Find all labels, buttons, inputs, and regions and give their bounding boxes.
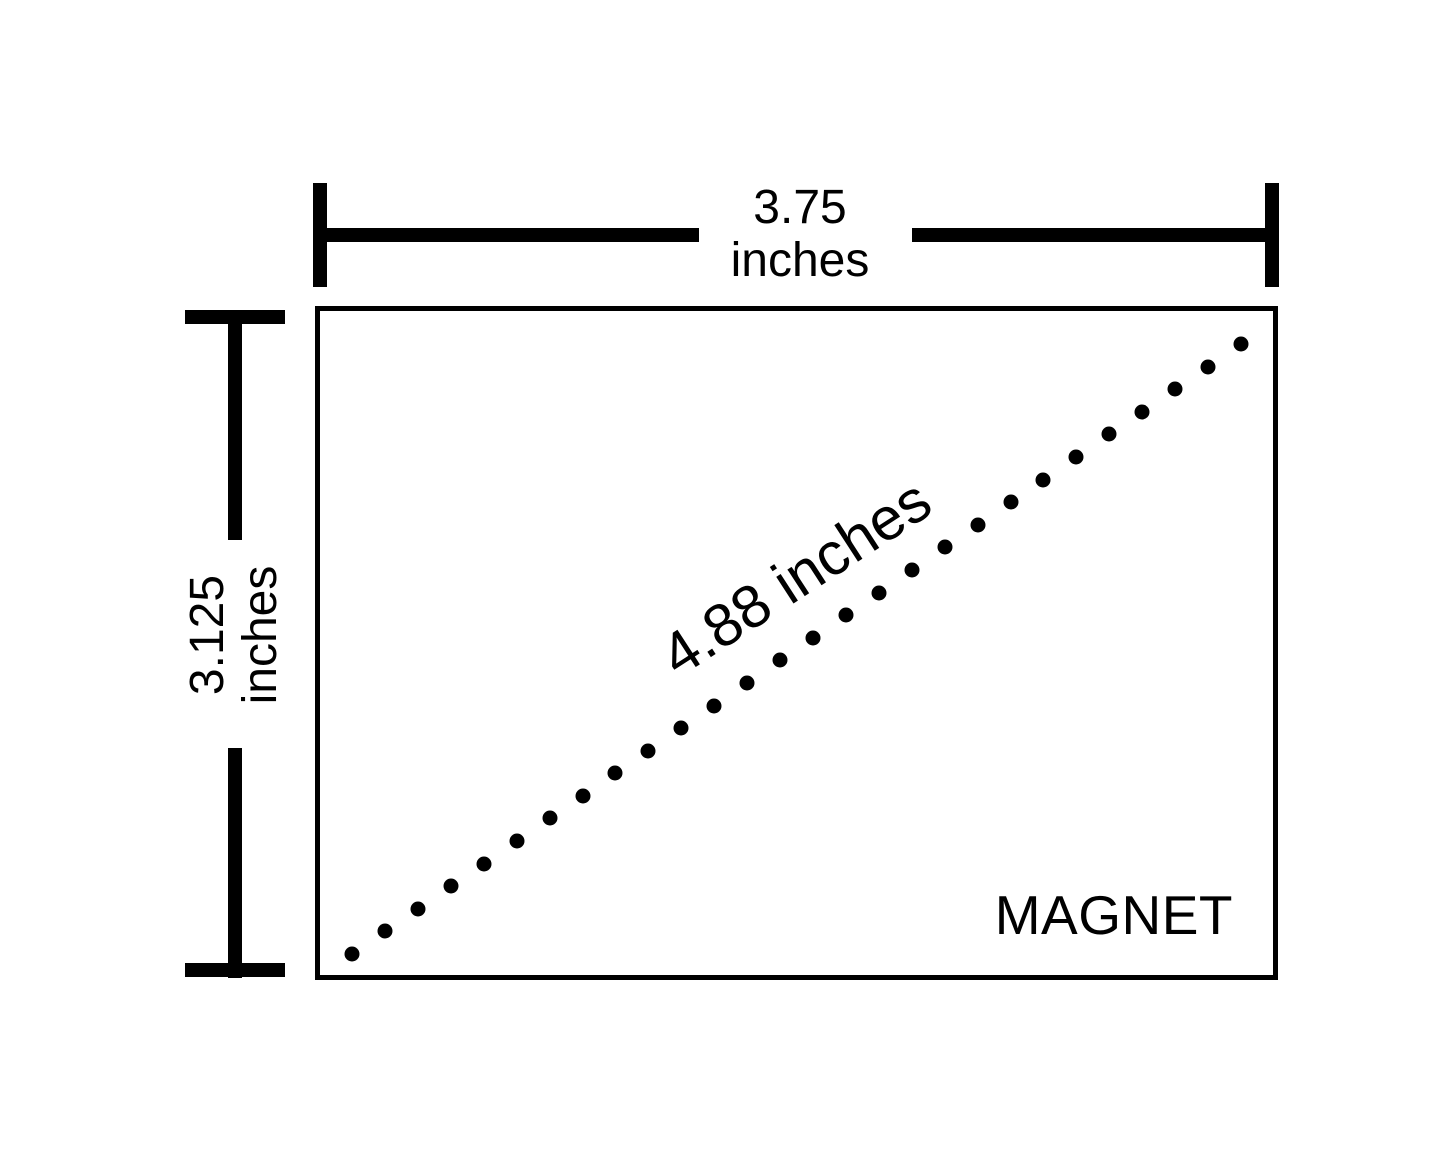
dot bbox=[443, 879, 458, 894]
magnet-label: MAGNET bbox=[995, 888, 1233, 943]
dot bbox=[542, 811, 557, 826]
dot bbox=[1003, 495, 1018, 510]
height-dimension-label: 3.125 inches bbox=[181, 566, 287, 705]
dot bbox=[674, 721, 689, 736]
width-dimension-value: 3.75 bbox=[731, 181, 870, 234]
dot bbox=[937, 540, 952, 555]
width-dimension-unit: inches bbox=[731, 234, 870, 287]
width-dimension-right-end-cap bbox=[1265, 183, 1279, 287]
diagram-canvas: 3.75 inches 3.125 inches MAGNET 4.88 inc… bbox=[0, 0, 1445, 1150]
dot bbox=[806, 630, 821, 645]
magnet-rectangle: MAGNET bbox=[315, 306, 1278, 980]
dot bbox=[970, 517, 985, 532]
height-dimension-bar-lower bbox=[228, 748, 242, 978]
dot bbox=[641, 743, 656, 758]
dot bbox=[476, 856, 491, 871]
width-dimension-bar-right bbox=[912, 228, 1279, 242]
dot bbox=[1135, 404, 1150, 419]
dot bbox=[1201, 359, 1216, 374]
dot bbox=[707, 698, 722, 713]
dot bbox=[1234, 337, 1249, 352]
dot bbox=[1036, 472, 1051, 487]
dot bbox=[1102, 427, 1117, 442]
dot bbox=[740, 675, 755, 690]
width-dimension-bar-left bbox=[313, 228, 699, 242]
dot bbox=[575, 788, 590, 803]
width-dimension-label: 3.75 inches bbox=[731, 181, 870, 287]
dot bbox=[773, 653, 788, 668]
height-dimension-bar-upper bbox=[228, 310, 242, 540]
dot bbox=[1069, 450, 1084, 465]
height-dimension-unit: inches bbox=[234, 566, 287, 705]
dot bbox=[838, 608, 853, 623]
dot bbox=[904, 562, 919, 577]
height-dimension-bottom-end-cap bbox=[185, 963, 285, 977]
dot bbox=[377, 924, 392, 939]
height-dimension-value: 3.125 bbox=[181, 566, 234, 705]
dot bbox=[1168, 382, 1183, 397]
dot bbox=[509, 834, 524, 849]
dot bbox=[871, 585, 886, 600]
dot bbox=[345, 947, 360, 962]
dot bbox=[410, 901, 425, 916]
dot bbox=[608, 766, 623, 781]
